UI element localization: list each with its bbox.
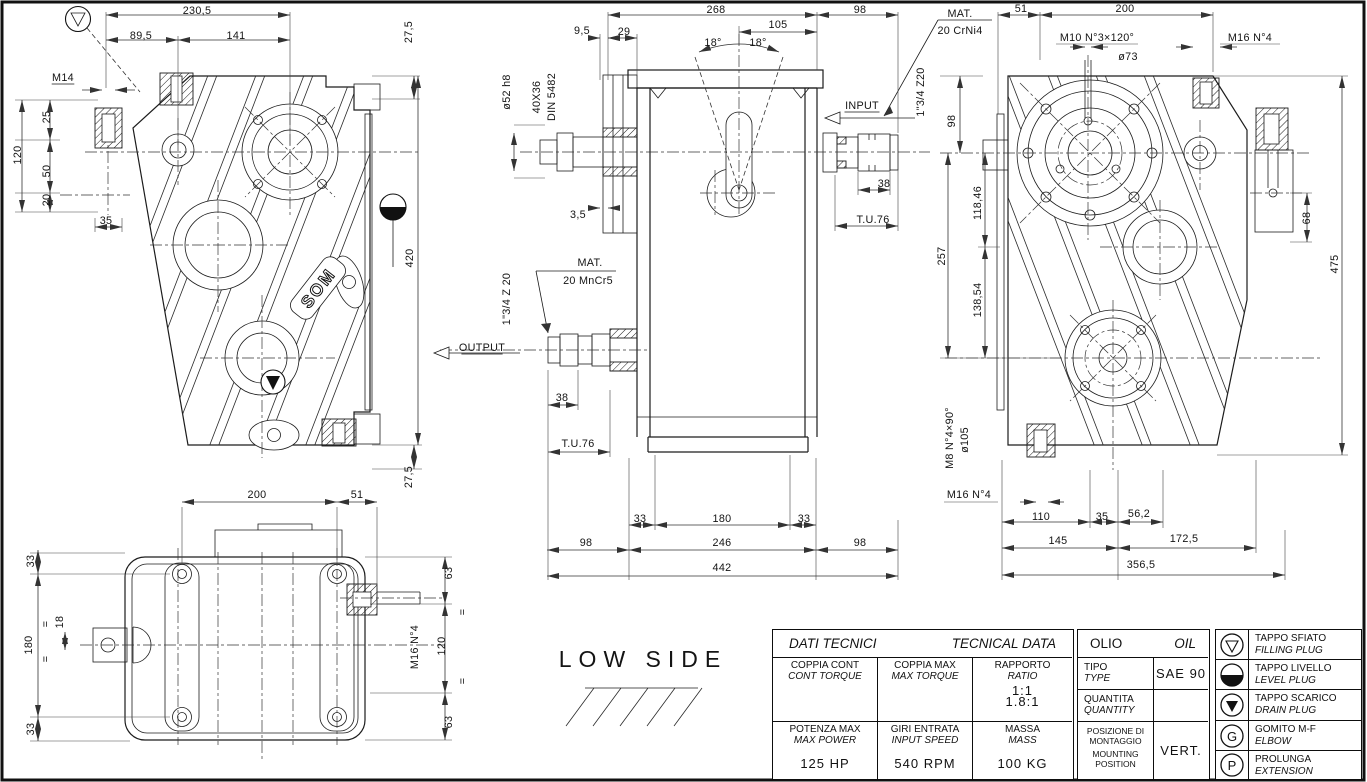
view-side [940,12,1348,580]
legend-row-drain: TAPPO SCARICODRAIN PLUG [1216,690,1361,721]
cell-posizione: POSIZIONE DI MONTAGGIO MOUNTING POSITION [1078,722,1154,779]
svg-text:20: 20 [41,194,53,207]
svg-text:110: 110 [1032,511,1050,523]
dimension-label: 20 CrNi4 [937,25,982,37]
oil-title-en: OIL [1174,636,1196,651]
svg-text:M16 N°4: M16 N°4 [1228,32,1272,44]
dimension-label: 18 [54,616,66,629]
svg-text:118,46: 118,46 [972,186,984,220]
svg-text:120: 120 [12,146,24,165]
dimension-label: 356,5 [1127,559,1156,571]
dimension-label: 98 [946,115,958,128]
svg-text:=: = [40,656,52,663]
ratio-value-2: 1.8:1 [973,696,1072,707]
svg-text:MAT.: MAT. [578,257,603,269]
svg-text:442: 442 [713,562,732,574]
svg-text:180: 180 [23,636,35,655]
svg-text:475: 475 [1329,255,1341,274]
mounting-position-value: VERT. [1154,722,1208,779]
svg-text:ø105: ø105 [959,427,971,453]
dimension-label: T.U.76 [856,214,889,226]
dimension-label: = [40,621,52,628]
svg-text:DIN 5482: DIN 5482 [546,73,558,121]
svg-text:98: 98 [854,537,867,549]
svg-text:63: 63 [443,567,455,580]
svg-text:200: 200 [248,489,267,501]
dimension-label: 33 [25,555,37,568]
view-front: SOM [15,7,459,470]
elbow-icon: G [1216,721,1249,750]
dimension-label: M16 N°4 [947,489,991,501]
dimension-label: 33 [25,723,37,736]
svg-text:27,5: 27,5 [403,21,415,43]
svg-text:25: 25 [41,111,53,124]
svg-text:98: 98 [946,115,958,128]
legend-row-extension: P PROLUNGAEXTENSION [1216,751,1361,779]
cell-giri-entrata: GIRI ENTRATAINPUT SPEED 540 RPM [878,722,973,779]
dimension-label: 18° [749,37,766,49]
dimension-label: 27,5 [403,21,415,43]
title-block: DATI TECNICI TECNICAL DATA COPPIA CONTCO… [772,629,1364,781]
svg-text:M16 N°4: M16 N°4 [409,625,421,669]
svg-text:ø73: ø73 [1118,51,1138,63]
oil-header: OLIO OIL [1078,630,1208,658]
dimension-label: 257 [936,247,948,266]
svg-text:420: 420 [404,249,416,268]
svg-text:257: 257 [936,247,948,266]
legend-row-elbow: G GOMITO M-FELBOW [1216,721,1361,751]
svg-text:G: G [1227,729,1237,744]
extension-icon: P [1216,751,1249,779]
dimension-label: 50 [41,165,53,178]
svg-text:51: 51 [1015,3,1028,15]
dimension-label: 35 [1096,511,1109,523]
svg-text:=: = [457,609,469,616]
dimension-label: 38 [556,392,569,404]
dimension-label: M16 N°4 [409,625,421,669]
drain-plug-symbol [261,370,285,394]
dimension-label: 18° [704,37,721,49]
svg-text:9,5: 9,5 [574,25,590,37]
svg-text:145: 145 [1049,535,1068,547]
dimension-label: INPUT [845,100,880,112]
dimension-label: 98 [580,537,593,549]
technical-data-table: DATI TECNICI TECNICAL DATA COPPIA CONTCO… [772,629,1074,780]
svg-text:141: 141 [227,30,246,42]
dimension-label: MAT. [948,8,973,20]
dimension-label: 98 [854,537,867,549]
svg-text:38: 38 [878,178,891,190]
svg-text:35: 35 [1096,511,1109,523]
svg-text:1"3/4 Z20: 1"3/4 Z20 [915,67,927,116]
drain-plug-icon [1216,690,1249,720]
dimension-label: 145 [1049,535,1068,547]
svg-text:38: 38 [556,392,569,404]
svg-text:20 MnCr5: 20 MnCr5 [563,275,613,287]
dimension-label: T.U.76 [561,438,594,450]
svg-text:33: 33 [798,513,811,525]
dimension-label: MAT. [578,257,603,269]
dimension-label: 63 [443,716,455,729]
svg-text:40X36: 40X36 [531,81,543,114]
dimension-label: 29 [618,26,631,38]
dimension-label: 200 [248,489,267,501]
dimension-label: 89,5 [130,30,152,42]
svg-text:OUTPUT: OUTPUT [459,342,505,354]
cell-potenza-max: POTENZA MAXMAX POWER 125 HP [773,722,878,779]
svg-text:18°: 18° [749,37,766,49]
dimension-label: 420 [404,249,416,268]
cell-coppia-max: COPPIA MAXMAX TORQUE [878,658,973,722]
dimension-label: 27,5 [403,466,415,488]
svg-text:M14: M14 [52,72,74,84]
cell-massa: MASSAMASS 100 KG [973,722,1072,779]
svg-text:68: 68 [1301,212,1313,225]
dimension-label: = [457,609,469,616]
svg-text:3,5: 3,5 [570,209,586,221]
svg-text:33: 33 [634,513,647,525]
svg-text:ø52 h8: ø52 h8 [501,74,513,109]
dimension-label: 475 [1329,255,1341,274]
view-top [30,502,452,760]
svg-text:246: 246 [713,537,732,549]
svg-text:29: 29 [618,26,631,38]
svg-text:T.U.76: T.U.76 [561,438,594,450]
dimension-label: 246 [713,537,732,549]
cell-quantita: QUANTITAQUANTITY [1078,690,1154,722]
dimension-label: M8 N°4×90° [944,407,956,469]
dimension-label: 9,5 [574,25,590,37]
table-title-it: DATI TECNICI [789,636,877,651]
filling-plug-icon [1216,630,1249,659]
svg-text:=: = [40,621,52,628]
level-plug-icon [1216,660,1249,689]
view-section [434,12,992,580]
dimension-label: 20 MnCr5 [563,275,613,287]
technical-data-header: DATI TECNICI TECNICAL DATA [773,630,1072,658]
dimension-label: M16 N°4 [1228,32,1272,44]
svg-text:33: 33 [25,723,37,736]
dimension-label: 120 [436,637,448,656]
dimension-label: 230,5 [183,5,212,17]
dimension-label: 180 [713,513,732,525]
level-plug-symbol [380,194,406,267]
dimension-label: 3,5 [570,209,586,221]
dimension-label: = [457,678,469,685]
svg-text:50: 50 [41,165,53,178]
dimension-label: 51 [1015,3,1028,15]
cell-rapporto: RAPPORTORATIO 1:1 1.8:1 [973,658,1072,722]
dimension-label: 35 [100,215,113,227]
dimension-label: 51 [351,489,364,501]
dimension-label: 120 [12,146,24,165]
dimension-label: 138,54 [972,283,984,318]
legend-row-filling: TAPPO SFIATOFILLING PLUG [1216,630,1361,660]
svg-text:172,5: 172,5 [1170,533,1199,545]
mass-value: 100 KG [973,758,1072,769]
dimension-label: 25 [41,111,53,124]
dimension-label: 98 [854,4,867,16]
dimension-label: ø105 [959,427,971,453]
oil-quantity-value [1154,690,1208,722]
svg-text:200: 200 [1116,3,1135,15]
dimension-label: 141 [227,30,246,42]
svg-text:98: 98 [580,537,593,549]
dimension-label: LOW SIDE [559,646,727,672]
dimension-label: 20 [41,194,53,207]
dimension-label: 172,5 [1170,533,1199,545]
dimension-label: 33 [634,513,647,525]
svg-text:268: 268 [707,4,726,16]
svg-text:18: 18 [54,616,66,629]
svg-text:35: 35 [100,215,113,227]
dimension-label: OUTPUT [459,342,505,354]
input-arrow [825,112,915,124]
svg-text:INPUT: INPUT [845,100,879,112]
svg-text:120: 120 [436,637,448,656]
speed-value: 540 RPM [878,758,972,769]
dimension-label: 40X36 [531,81,543,114]
dimension-label: 118,46 [972,186,984,220]
svg-text:M16 N°4: M16 N°4 [947,489,991,501]
dimension-label: 1"3/4 Z 20 [501,273,513,325]
drawing-sheet: SOM [0,0,1367,782]
svg-text:230,5: 230,5 [183,5,212,17]
oil-type-value: SAE 90 [1154,658,1208,690]
oil-table: OLIO OIL TIPOTYPE SAE 90 QUANTITAQUANTIT… [1077,629,1210,780]
svg-text:1"3/4 Z 20: 1"3/4 Z 20 [501,273,513,325]
power-value: 125 HP [773,758,877,769]
svg-text:T.U.76: T.U.76 [856,214,889,226]
dimension-label: 68 [1301,212,1313,225]
svg-text:56,2: 56,2 [1128,508,1150,520]
low-side-hatch [566,688,702,726]
dimension-label: 33 [798,513,811,525]
svg-text:LOW SIDE: LOW SIDE [559,646,727,672]
dimension-label: ø73 [1118,51,1138,63]
svg-text:20 CrNi4: 20 CrNi4 [937,25,982,37]
dimension-label: DIN 5482 [546,73,558,121]
cell-tipo: TIPOTYPE [1078,658,1154,690]
legend-row-level: TAPPO LIVELLOLEVEL PLUG [1216,660,1361,690]
dimension-label: M14 [52,72,75,84]
svg-text:27,5: 27,5 [403,466,415,488]
svg-text:180: 180 [713,513,732,525]
svg-text:P: P [1228,758,1237,773]
filling-plug-symbol [66,7,141,93]
cell-coppia-cont: COPPIA CONTCONT TORQUE [773,658,878,722]
dimension-label: 56,2 [1128,508,1150,520]
svg-text:51: 51 [351,489,364,501]
legend-table: TAPPO SFIATOFILLING PLUG TAPPO LIVELLOLE… [1215,629,1362,780]
dimension-label: 63 [443,567,455,580]
dimension-label: 180 [23,636,35,655]
oil-title-it: OLIO [1090,636,1122,651]
dimension-label: 38 [878,178,891,190]
dimension-label: = [40,656,52,663]
dimension-label: 1"3/4 Z20 [915,67,927,116]
svg-text:98: 98 [854,4,867,16]
table-title-en: TECNICAL DATA [952,636,1056,651]
dimension-label: 442 [713,562,732,574]
svg-text:M10 N°3×120°: M10 N°3×120° [1060,32,1134,44]
svg-text:63: 63 [443,716,455,729]
svg-text:MAT.: MAT. [948,8,973,20]
svg-text:138,54: 138,54 [972,283,984,318]
svg-text:18°: 18° [704,37,721,49]
dimension-label: 268 [707,4,726,16]
dimension-label: 110 [1032,511,1050,523]
dimension-label: 200 [1116,3,1135,15]
dimension-label: ø52 h8 [501,74,513,109]
dimension-label: 105 [769,19,788,31]
svg-text:33: 33 [25,555,37,568]
svg-text:M8 N°4×90°: M8 N°4×90° [944,407,956,469]
dimension-label: M10 N°3×120° [1060,32,1134,44]
svg-text:89,5: 89,5 [130,30,152,42]
svg-text:105: 105 [769,19,788,31]
svg-text:356,5: 356,5 [1127,559,1156,571]
svg-text:=: = [457,678,469,685]
